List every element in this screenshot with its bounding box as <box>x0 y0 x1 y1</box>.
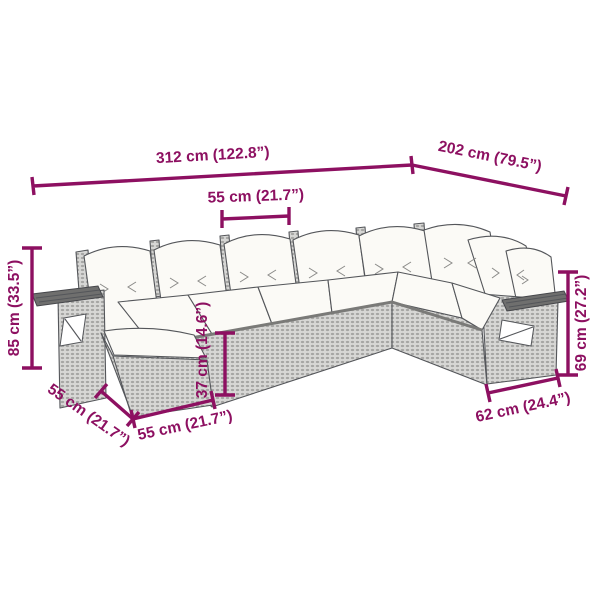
dim-label: 37 cm (14.6”) <box>194 302 211 399</box>
dim-height-right: 69 cm (27.2”) <box>558 272 590 375</box>
dim-label: 69 cm (27.2”) <box>573 275 590 372</box>
diagram-canvas: 312 cm (122.8”) 202 cm (79.5”) 55 cm (21… <box>0 0 600 600</box>
sofa-dimension-diagram: 312 cm (122.8”) 202 cm (79.5”) 55 cm (21… <box>0 0 600 600</box>
dim-label: 312 cm (122.8”) <box>155 144 270 167</box>
dim-label: 85 cm (33.5”) <box>6 260 23 357</box>
dim-right-width: 202 cm (79.5”) <box>412 138 568 205</box>
dim-height-left: 85 cm (33.5”) <box>6 248 42 368</box>
dim-label: 202 cm (79.5”) <box>437 138 543 175</box>
dim-total-width: 312 cm (122.8”) <box>32 144 413 195</box>
dim-seat-width-top: 55 cm (21.7”) <box>207 186 304 228</box>
dim-label: 55 cm (21.7”) <box>207 186 304 206</box>
